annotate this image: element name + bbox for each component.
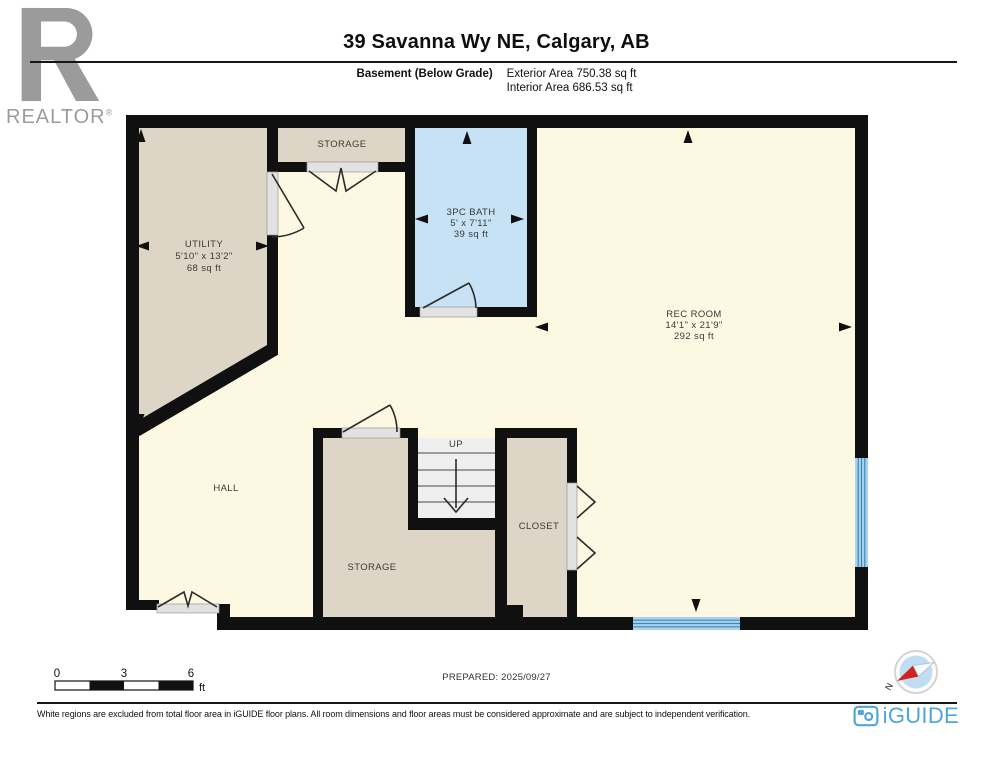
iguide-logo-text: iGUIDE — [883, 703, 959, 729]
room-dims-bath: 5' x 7'11" — [450, 218, 491, 229]
window-right — [855, 458, 868, 567]
floorplan-page: REALTOR® 39 Savanna Wy NE, Calgary, AB B… — [0, 0, 993, 768]
iguide-logo-icon — [853, 704, 879, 728]
stairs-up-label: UP — [449, 439, 463, 450]
realtor-logo-text: REALTOR® — [6, 106, 113, 129]
window-bottom — [633, 617, 740, 630]
room-label-storage-top: STORAGE — [317, 139, 366, 150]
footer-disclaimer: White regions are excluded from total fl… — [37, 709, 750, 719]
floor-name: Basement (Below Grade) — [357, 68, 493, 94]
stairs — [418, 438, 495, 518]
room-area-bath: 39 sq ft — [454, 229, 488, 240]
exterior-area: Exterior Area 750.38 sq ft — [507, 68, 637, 80]
room-label-storage-bottom: STORAGE — [347, 562, 396, 573]
room-label-bath: 3PC BATH — [447, 207, 496, 218]
room-area-utility: 68 sq ft — [187, 263, 221, 274]
page-title: 39 Savanna Wy NE, Calgary, AB — [0, 31, 993, 54]
floor-summary: Basement (Below Grade) Exterior Area 750… — [0, 68, 993, 94]
room-label-hall: HALL — [213, 483, 238, 494]
room-label-utility: UTILITY — [185, 239, 223, 250]
room-dims-rec: 14'1" x 21'9" — [665, 320, 722, 331]
interior-area: Interior Area 686.53 sq ft — [507, 82, 637, 94]
room-label-rec: REC ROOM — [666, 309, 721, 320]
scale-unit: ft — [199, 682, 205, 694]
room-label-closet: CLOSET — [519, 521, 559, 532]
room-dims-utility: 5'10" x 13'2" — [175, 251, 232, 262]
header-divider — [30, 61, 957, 63]
floor-plan: STORAGE UTILITY 5'10" x 13'2" 68 sq ft 3… — [0, 0, 993, 768]
room-area-rec: 292 sq ft — [674, 331, 714, 342]
prepared-date: PREPARED: 2025/09/27 — [0, 672, 993, 683]
footer-divider — [37, 702, 957, 704]
registered-mark: ® — [106, 107, 114, 117]
iguide-logo: iGUIDE — [853, 703, 959, 729]
